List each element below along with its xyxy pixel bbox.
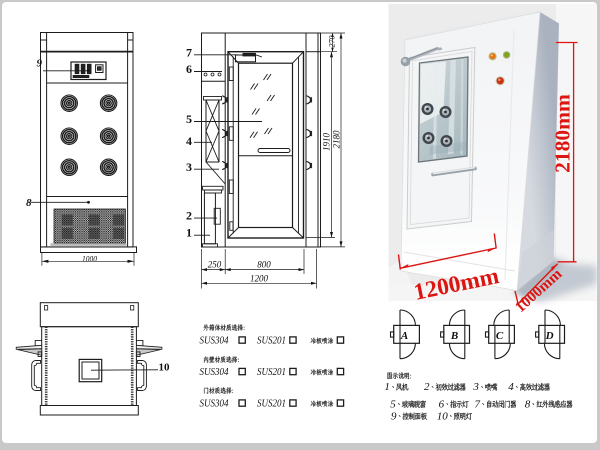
svg-text:1000: 1000	[82, 253, 98, 263]
svg-text:D: D	[545, 330, 554, 342]
svg-text:7: 7	[475, 398, 481, 410]
svg-text:1: 1	[186, 226, 192, 240]
svg-text:1910: 1910	[322, 133, 332, 152]
svg-text:2180: 2180	[332, 130, 342, 149]
svg-text:2: 2	[424, 381, 430, 393]
svg-text:B: B	[450, 330, 458, 342]
svg-text:800: 800	[257, 260, 271, 270]
svg-text:SUS201: SUS201	[257, 336, 286, 347]
svg-text:6: 6	[186, 62, 192, 76]
svg-text:3: 3	[186, 160, 192, 174]
svg-text:1200: 1200	[250, 273, 269, 283]
svg-text:5: 5	[390, 398, 396, 410]
svg-text:C: C	[496, 330, 504, 342]
svg-text:SUS201: SUS201	[257, 367, 286, 378]
svg-text:7: 7	[186, 46, 192, 60]
svg-text:6: 6	[439, 398, 445, 410]
svg-text:8: 8	[26, 197, 32, 209]
svg-text:9: 9	[391, 410, 397, 422]
svg-text:4: 4	[186, 134, 192, 148]
svg-text:10: 10	[159, 362, 171, 374]
svg-text:SUS201: SUS201	[257, 399, 286, 410]
svg-text:1: 1	[384, 381, 390, 393]
svg-text:5: 5	[186, 112, 192, 126]
svg-text:SUS304: SUS304	[200, 336, 229, 347]
svg-text:2180mm: 2180mm	[551, 94, 575, 173]
svg-text:2: 2	[186, 209, 192, 223]
svg-text:3: 3	[472, 381, 479, 393]
svg-text:4: 4	[508, 381, 514, 393]
svg-text:A: A	[400, 330, 408, 342]
svg-text:10: 10	[437, 410, 449, 422]
svg-text:270: 270	[328, 36, 337, 48]
svg-text:250: 250	[208, 260, 222, 270]
svg-text:SUS304: SUS304	[200, 399, 229, 410]
svg-text:9: 9	[37, 58, 43, 70]
svg-text:8: 8	[525, 398, 531, 410]
svg-text:SUS304: SUS304	[200, 367, 229, 378]
